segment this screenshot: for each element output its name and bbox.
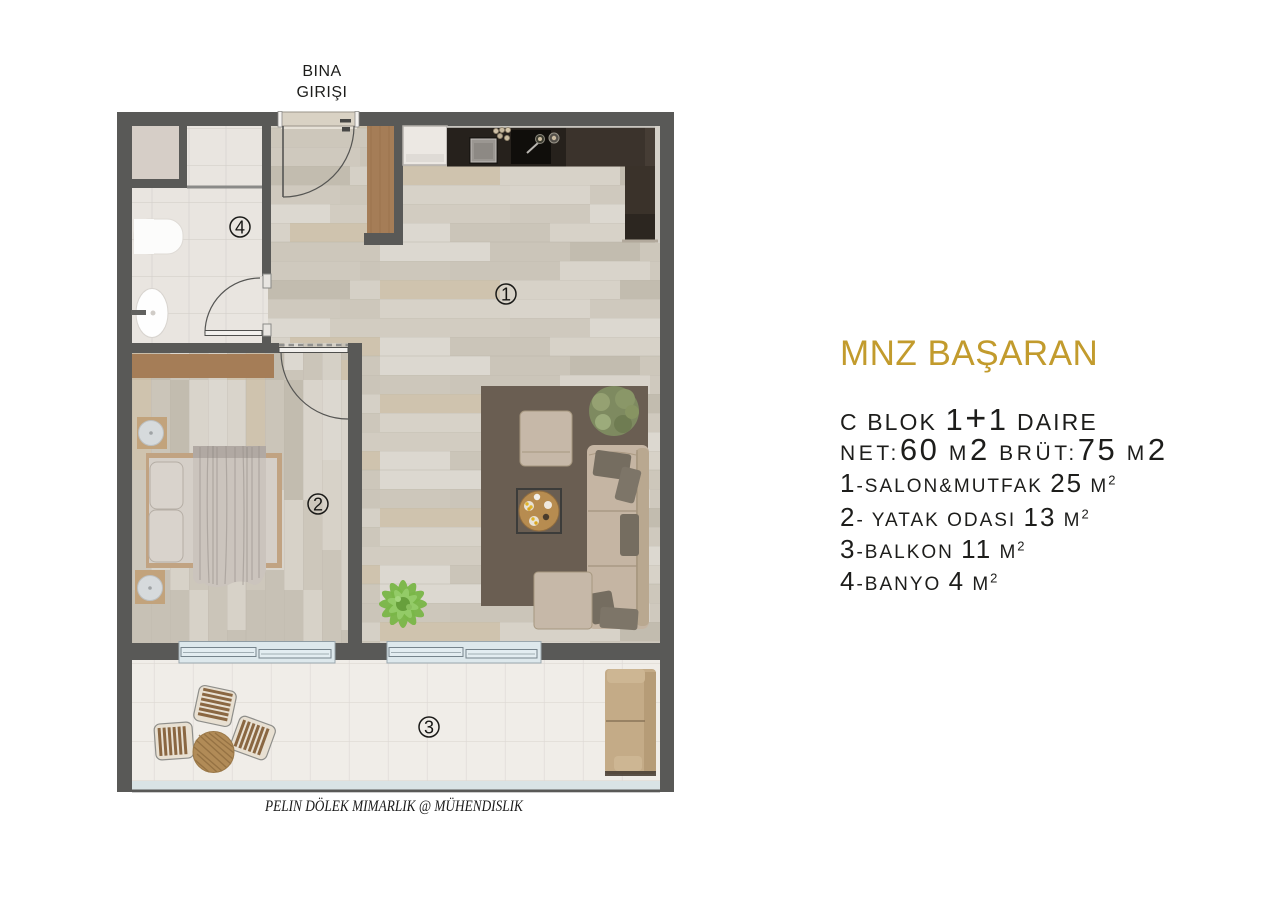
svg-text:4: 4 (235, 218, 245, 238)
svg-text:BINA: BINA (302, 63, 341, 80)
svg-text:3: 3 (424, 718, 434, 738)
svg-text:GIRIŞI: GIRIŞI (296, 84, 347, 101)
svg-text:2: 2 (313, 495, 323, 515)
svg-text:1: 1 (501, 285, 511, 305)
